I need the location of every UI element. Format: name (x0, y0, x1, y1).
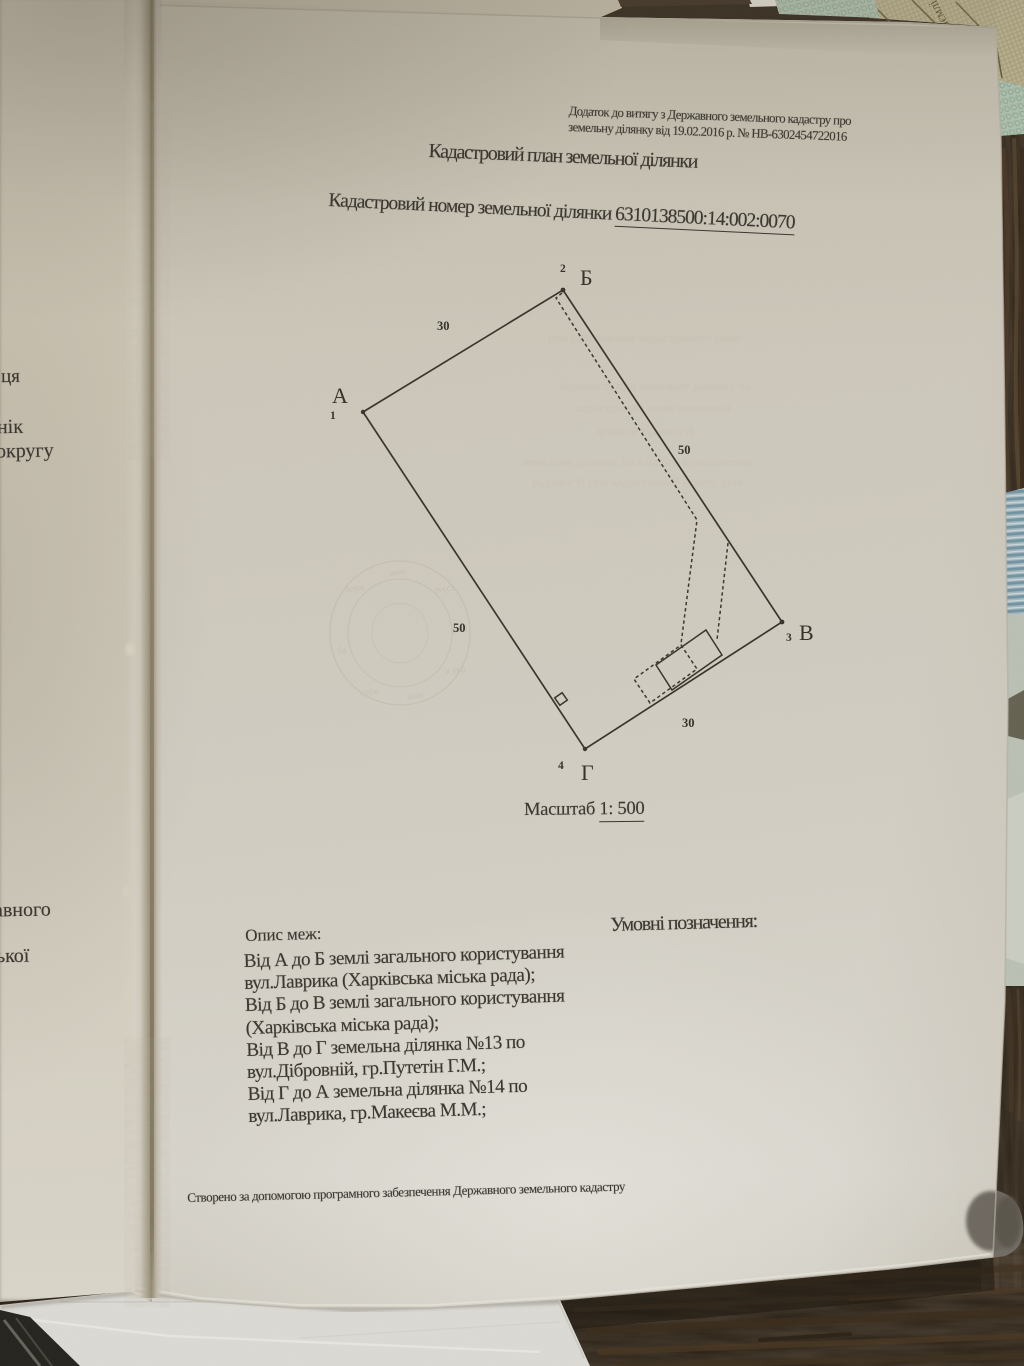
svg-text:служ: служ (359, 685, 380, 698)
svg-text:відомості про кадастровий номе: відомості про кадастровий номер діля (532, 474, 743, 489)
svg-text:ділянки відомості: ділянки відомості (595, 423, 694, 438)
svg-text:про присвоєння кадастрового но: про присвоєння кадастрового номе (548, 330, 742, 345)
svg-text:земельна ділянка загального пр: земельна ділянка загального призначення (522, 454, 753, 469)
svg-text:В: В (799, 620, 814, 645)
svg-text:відомості про земельну ділянку: відомості про земельну ділянку та (560, 378, 751, 393)
svg-text:30: 30 (682, 716, 695, 730)
svg-text:реєст: реєст (434, 582, 456, 595)
svg-text:30: 30 (437, 319, 450, 333)
svg-text:держ: держ (345, 581, 366, 594)
svg-text:3: 3 (786, 632, 792, 644)
svg-text:4: 4 (558, 760, 564, 772)
svg-text:Б: Б (580, 265, 593, 290)
svg-text:аїни: аїни (406, 689, 424, 701)
svg-text:авна: авна (389, 566, 407, 578)
svg-text:Г: Г (581, 760, 594, 785)
svg-text:А: А (332, 383, 348, 408)
svg-text:кадастровий план земельної: кадастровий план земельної (575, 400, 731, 415)
svg-text:1: 1 (330, 410, 336, 422)
svg-text:50: 50 (453, 621, 466, 635)
svg-text:я укр: я укр (445, 663, 466, 676)
svg-text:50: 50 (678, 443, 691, 457)
svg-text:2: 2 (560, 263, 566, 275)
svg-text:ба: ба (337, 645, 347, 656)
